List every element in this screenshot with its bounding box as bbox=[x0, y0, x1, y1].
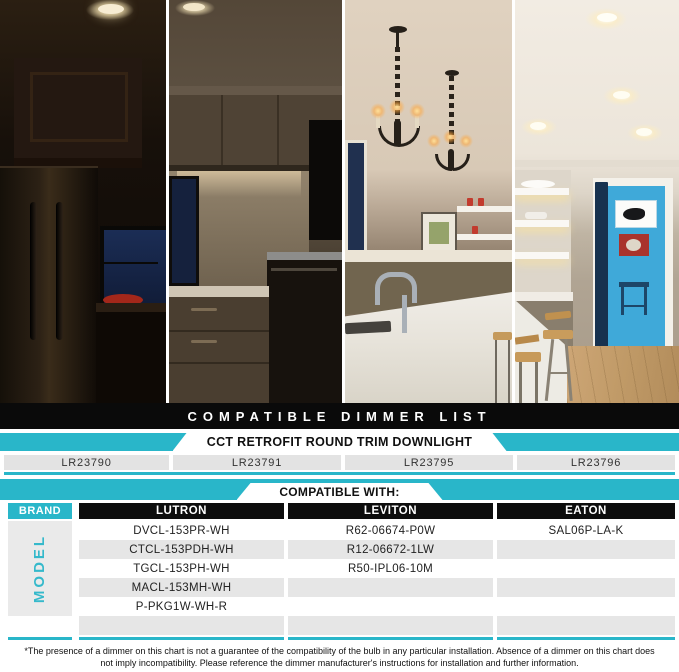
column-underline bbox=[79, 637, 284, 640]
dog-silhouette bbox=[623, 208, 645, 220]
red-glass bbox=[472, 226, 478, 234]
fridge-handle bbox=[56, 202, 63, 340]
table-cell: R62-06674-P0W bbox=[288, 521, 493, 540]
chandelier-stem bbox=[396, 31, 399, 47]
recessed-light bbox=[597, 13, 617, 22]
red-glass bbox=[478, 198, 484, 206]
candle-flame bbox=[427, 134, 441, 148]
kitchen-photo bbox=[0, 0, 679, 403]
table-cell bbox=[288, 597, 493, 616]
lower-cabinet-dark bbox=[96, 312, 166, 403]
product-name-bar: CCT RETROFIT ROUND TRIM DOWNLIGHT bbox=[0, 433, 679, 451]
window-night bbox=[169, 176, 199, 286]
column-header-text: EATON bbox=[565, 505, 607, 517]
refrigerator bbox=[0, 166, 98, 403]
drawer-handle bbox=[191, 308, 217, 311]
white-shelf bbox=[515, 252, 569, 259]
faucet-arc bbox=[375, 272, 417, 303]
lower-cabinets bbox=[169, 297, 269, 403]
product-model-cell: LR23795 bbox=[345, 455, 513, 470]
product-model-text: LR23790 bbox=[61, 457, 111, 469]
column-header-text: LEVITON bbox=[364, 505, 417, 517]
panel-divider bbox=[512, 0, 515, 403]
table-cell bbox=[497, 616, 675, 635]
bar-stool-seat bbox=[493, 332, 512, 340]
table-cell bbox=[497, 578, 675, 597]
table-cell: MACL-153MH-WH bbox=[79, 578, 284, 597]
column-header-text: LUTRON bbox=[156, 505, 207, 517]
title-banner-text: COMPATIBLE DIMMER LIST bbox=[187, 409, 491, 424]
drawer-handle bbox=[191, 340, 217, 343]
white-shelf bbox=[515, 188, 569, 195]
candle-flame bbox=[443, 130, 457, 144]
table-cell bbox=[288, 616, 493, 635]
recessed-light bbox=[636, 128, 652, 136]
column-header-leviton: LEVITON bbox=[288, 503, 493, 519]
table-cell bbox=[79, 616, 284, 635]
compatible-with-text: COMPATIBLE WITH: bbox=[279, 485, 399, 499]
table-cell: CTCL-153PDH-WH bbox=[79, 540, 284, 559]
table-cell bbox=[288, 578, 493, 597]
range-knob-rail bbox=[271, 268, 337, 271]
table-cell: TGCL-153PH-WH bbox=[79, 559, 284, 578]
floating-shelf bbox=[457, 206, 512, 212]
chandelier-arm bbox=[378, 126, 399, 147]
candle-flame bbox=[389, 99, 405, 115]
wall-art-landscape bbox=[429, 222, 449, 244]
cabinet-seam bbox=[277, 95, 279, 165]
compatible-with-tab: COMPATIBLE WITH: bbox=[237, 483, 443, 500]
column-header-eaton: EATON bbox=[497, 503, 675, 519]
table-cell: P-PKG1W-WH-R bbox=[79, 597, 284, 616]
table-cell: DVCL-153PR-WH bbox=[79, 521, 284, 540]
crown-molding bbox=[515, 160, 679, 167]
product-model-text: LR23791 bbox=[232, 457, 282, 469]
chandelier-arm bbox=[435, 154, 452, 171]
floor-planks bbox=[567, 346, 679, 403]
kitchen-panel-dimmest bbox=[0, 0, 166, 403]
kitchen-panel-dim bbox=[169, 0, 342, 403]
faucet-pipe bbox=[402, 295, 407, 333]
chandelier-arm bbox=[453, 154, 470, 171]
window-mullion bbox=[104, 262, 158, 264]
brand-header-text: BRAND bbox=[19, 505, 61, 517]
bar-stool-leg bbox=[495, 340, 497, 403]
bar-stool-leg bbox=[519, 362, 522, 403]
teal-divider-rule bbox=[4, 472, 675, 475]
recessed-light bbox=[613, 91, 630, 99]
room-stool-leg bbox=[644, 287, 647, 315]
product-name-tab: CCT RETROFIT ROUND TRIM DOWNLIGHT bbox=[173, 433, 507, 451]
room-stool-leg bbox=[621, 287, 624, 315]
table-cell: R12-06672-1LW bbox=[288, 540, 493, 559]
floating-shelf bbox=[457, 234, 512, 240]
fridge-handle bbox=[30, 202, 37, 340]
cabinet-seam bbox=[221, 95, 223, 165]
white-shelf bbox=[515, 220, 569, 227]
candle-flame bbox=[459, 134, 473, 148]
bar-stool-seat bbox=[515, 352, 541, 362]
compatible-with-bar: COMPATIBLE WITH: bbox=[0, 479, 679, 500]
product-model-cell: LR23790 bbox=[4, 455, 169, 470]
disclaimer-footnote: *The presence of a dimmer on this chart … bbox=[17, 646, 662, 669]
counter-dark bbox=[96, 303, 166, 312]
candle-flame bbox=[370, 103, 386, 119]
product-model-cell: LR23796 bbox=[517, 455, 675, 470]
table-cell bbox=[497, 540, 675, 559]
panel-divider bbox=[166, 0, 169, 403]
column-underline bbox=[497, 637, 675, 640]
product-model-text: LR23796 bbox=[571, 457, 621, 469]
column-header-lutron: LUTRON bbox=[79, 503, 284, 519]
bar-stool-leg bbox=[508, 340, 510, 403]
faucet-spout bbox=[375, 295, 380, 305]
model-side-label-text: MODEL bbox=[32, 534, 49, 603]
counter bbox=[515, 292, 573, 301]
compatible-dimmer-chart: COMPATIBLE DIMMER LIST CCT RETROFIT ROUN… bbox=[0, 0, 679, 672]
table-cell: R50-IPL06-10M bbox=[288, 559, 493, 578]
kitchen-panel-medium bbox=[345, 0, 512, 403]
column-underline bbox=[8, 637, 72, 640]
bar-stool-leg bbox=[535, 362, 538, 403]
recessed-light bbox=[183, 3, 205, 11]
candle-flame bbox=[409, 103, 425, 119]
title-banner: COMPATIBLE DIMMER LIST bbox=[0, 403, 679, 429]
dish bbox=[521, 180, 555, 188]
table-cell bbox=[497, 559, 675, 578]
panel-divider bbox=[342, 0, 345, 403]
bar-stool-seat bbox=[543, 330, 573, 339]
product-model-cell: LR23791 bbox=[173, 455, 341, 470]
drawer-line bbox=[169, 362, 269, 364]
table-cell bbox=[497, 597, 675, 616]
red-glass bbox=[467, 198, 473, 206]
kitchen-panel-brightest bbox=[515, 0, 679, 403]
model-side-label: MODEL bbox=[8, 521, 72, 616]
product-model-text: LR23795 bbox=[404, 457, 454, 469]
chandelier-arm bbox=[399, 126, 420, 147]
column-underline bbox=[288, 637, 493, 640]
table-cell: SAL06P-LA-K bbox=[497, 521, 675, 540]
wall-oven bbox=[309, 120, 342, 240]
perimeter-counter bbox=[345, 250, 512, 262]
crown-molding bbox=[169, 86, 342, 95]
countertop bbox=[169, 286, 269, 297]
range bbox=[267, 252, 342, 403]
cabinet-door-panel bbox=[30, 72, 128, 142]
bar-stool-footring bbox=[550, 372, 570, 374]
red-art-figure bbox=[626, 239, 641, 251]
recessed-light bbox=[530, 122, 546, 130]
room-stool-rail bbox=[621, 305, 647, 307]
drawer-line bbox=[169, 330, 269, 332]
brand-header-cell: BRAND bbox=[8, 503, 72, 519]
product-name-text: CCT RETROFIT ROUND TRIM DOWNLIGHT bbox=[207, 435, 472, 449]
recessed-light bbox=[98, 4, 124, 14]
dish bbox=[525, 212, 547, 219]
